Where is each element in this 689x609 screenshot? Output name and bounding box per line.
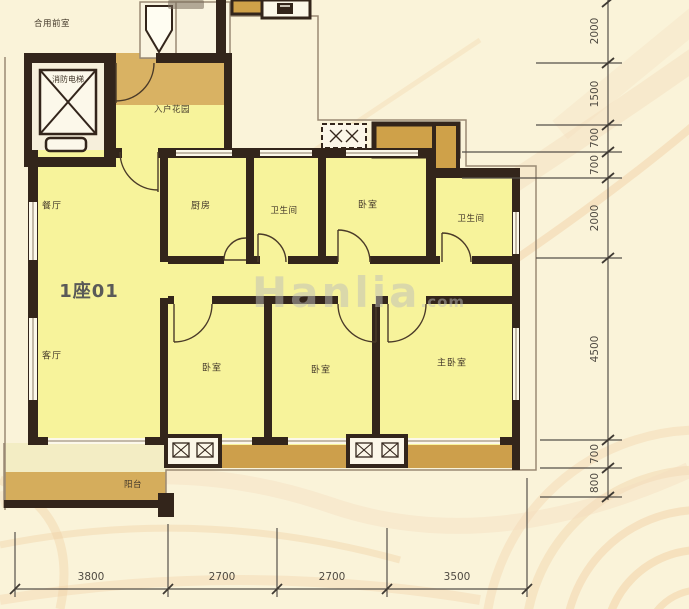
ac-box-bottom-right [348, 436, 406, 466]
fixture-glyph [277, 3, 293, 14]
dim-bottom-3800: 3800 [78, 572, 105, 583]
window-top-kitchen [176, 150, 232, 156]
window-left-living [29, 318, 37, 400]
label-fire-elevator: 消防电梯 [52, 76, 84, 84]
label-bedroom-mid: 卧室 [311, 367, 331, 376]
dim-right-1500: 1500 [590, 81, 601, 108]
window-right-bath2 [513, 212, 519, 254]
watermark-suffix: .com [421, 293, 466, 311]
label-bathroom-1: 卫生间 [270, 207, 297, 216]
watermark: Hanlia.com [252, 272, 465, 314]
dim-right-2000b: 2000 [590, 205, 601, 232]
label-living: 客厅 [42, 353, 62, 362]
ac-box-bottom-left [166, 436, 220, 466]
dim-right-700b: 700 [590, 155, 601, 175]
label-balcony: 阳台 [124, 481, 142, 490]
window-left-dining [29, 202, 37, 260]
window-bottom-master [408, 438, 500, 444]
label-bathroom-2: 卫生间 [457, 215, 484, 224]
watermark-name: Hanlia [252, 268, 421, 317]
label-master-bedroom: 主卧室 [437, 360, 467, 369]
ac-box-top [322, 124, 366, 148]
dim-right-4500: 4500 [590, 336, 601, 363]
dim-bottom-2700a: 2700 [209, 572, 236, 583]
floorplan-page: Hanlia.com 合用前室 消防电梯 入户花园 餐厅 1座01 客厅 厨房 … [0, 0, 689, 609]
label-bedroom-top: 卧室 [358, 202, 378, 211]
window-top-bath1 [260, 150, 312, 156]
door-balcony-living [48, 438, 145, 444]
top-tan-block [232, 0, 262, 14]
dim-bottom-3500: 3500 [444, 572, 471, 583]
window-top-bedroom [346, 150, 418, 156]
dim-right-2000a: 2000 [590, 18, 601, 45]
dim-right-800: 800 [590, 473, 601, 493]
label-entry-garden: 入户花园 [154, 106, 190, 115]
opening-living-corridor [160, 262, 168, 298]
label-dining: 餐厅 [42, 203, 62, 212]
label-kitchen: 厨房 [191, 203, 211, 212]
elevator-door-sill [46, 138, 86, 151]
dim-right-700a: 700 [590, 128, 601, 148]
cutoff-label [168, 0, 204, 9]
label-shared-front-room: 合用前室 [34, 20, 70, 29]
dim-bottom-2700b: 2700 [319, 572, 346, 583]
label-bedroom-left: 卧室 [202, 365, 222, 374]
dim-right-700c: 700 [590, 444, 601, 464]
window-right-master [513, 328, 519, 400]
unit-number-label: 1座01 [59, 283, 119, 301]
